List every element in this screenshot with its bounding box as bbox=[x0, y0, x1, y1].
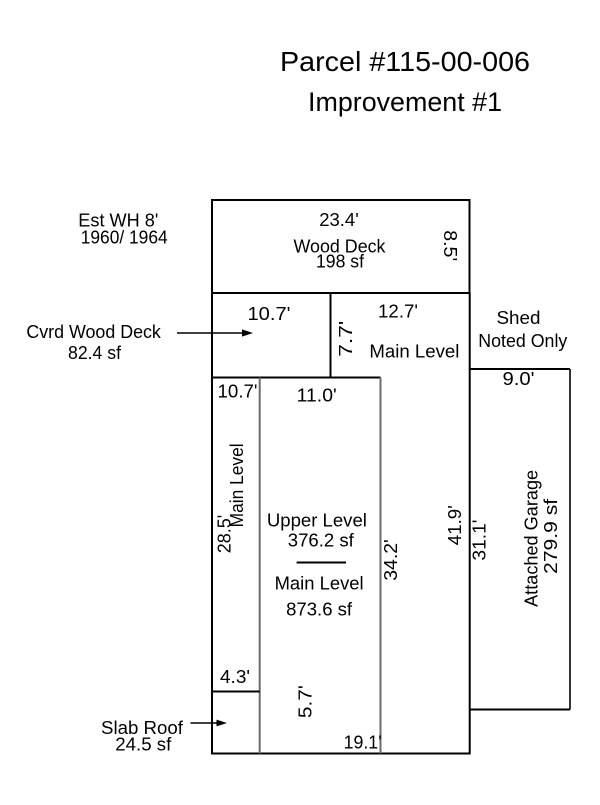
svg-text:23.4': 23.4' bbox=[319, 209, 359, 230]
svg-text:Cvrd Wood Deck: Cvrd Wood Deck bbox=[26, 321, 161, 342]
svg-text:10.7': 10.7' bbox=[218, 381, 258, 402]
svg-text:9.0': 9.0' bbox=[503, 368, 535, 389]
svg-text:Main Level: Main Level bbox=[369, 341, 459, 362]
svg-text:Noted Only: Noted Only bbox=[478, 330, 568, 351]
svg-text:Main Level: Main Level bbox=[275, 573, 364, 594]
svg-text:24.5 sf: 24.5 sf bbox=[115, 734, 172, 755]
svg-text:82.4 sf: 82.4 sf bbox=[68, 342, 122, 363]
svg-text:7.7': 7.7' bbox=[335, 321, 356, 357]
svg-text:279.9 sf: 279.9 sf bbox=[540, 498, 561, 574]
svg-text:12.7': 12.7' bbox=[378, 301, 418, 322]
svg-text:1960/ 1964: 1960/ 1964 bbox=[81, 227, 168, 248]
svg-text:Parcel #115-00-006: Parcel #115-00-006 bbox=[280, 46, 530, 77]
svg-text:4.3': 4.3' bbox=[220, 666, 250, 687]
svg-text:198 sf: 198 sf bbox=[316, 251, 365, 272]
svg-text:Upper Level: Upper Level bbox=[267, 510, 367, 531]
svg-text:19.1': 19.1' bbox=[344, 732, 382, 753]
svg-text:Improvement #1: Improvement #1 bbox=[308, 87, 502, 117]
svg-text:376.2 sf: 376.2 sf bbox=[288, 530, 355, 551]
svg-text:28.5': 28.5' bbox=[213, 515, 234, 554]
svg-text:8.5': 8.5' bbox=[440, 230, 461, 261]
svg-text:31.1': 31.1' bbox=[468, 520, 489, 561]
svg-text:Attached Garage: Attached Garage bbox=[521, 470, 542, 607]
svg-text:41.9': 41.9' bbox=[444, 505, 465, 545]
svg-text:10.7': 10.7' bbox=[248, 303, 291, 324]
svg-text:5.7': 5.7' bbox=[295, 685, 316, 718]
svg-text:873.6 sf: 873.6 sf bbox=[286, 598, 353, 619]
svg-text:Shed: Shed bbox=[497, 307, 541, 328]
svg-text:34.2': 34.2' bbox=[380, 539, 401, 581]
svg-text:11.0': 11.0' bbox=[297, 385, 337, 406]
